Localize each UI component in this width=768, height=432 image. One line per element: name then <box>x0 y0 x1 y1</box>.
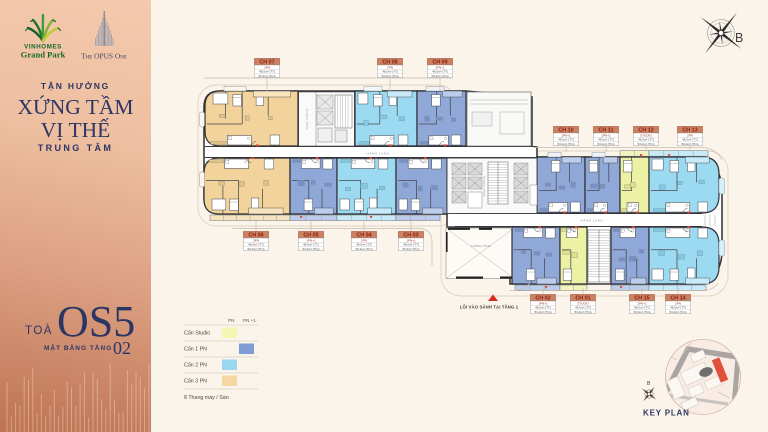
svg-text:HÀNH LANG: HÀNH LANG <box>581 219 604 223</box>
svg-text:53.2m² (Tim): 53.2m² (Tim) <box>633 310 650 314</box>
svg-text:53.2m² (Tim): 53.2m² (Tim) <box>637 142 654 146</box>
svg-text:53.2m² (Tim): 53.2m² (Tim) <box>402 247 419 251</box>
svg-text:HÀNH LANG: HÀNH LANG <box>367 152 390 156</box>
svg-text:53.2m² (Tim): 53.2m² (Tim) <box>557 142 574 146</box>
svg-text:53.2m² (Tim): 53.2m² (Tim) <box>431 74 448 78</box>
svg-text:LỐI VÀO SẢNH TẠI TẦNG 1: LỐI VÀO SẢNH TẠI TẦNG 1 <box>460 305 519 310</box>
svg-text:53.2m² (Tim): 53.2m² (Tim) <box>681 142 698 146</box>
svg-text:53.2m² (Tim): 53.2m² (Tim) <box>534 310 551 314</box>
svg-text:53.2m² (Tim): 53.2m² (Tim) <box>597 142 614 146</box>
svg-text:B: B <box>647 381 651 387</box>
svg-text:53.2m² (Tim): 53.2m² (Tim) <box>381 74 398 78</box>
svg-text:53.2m² (Tim): 53.2m² (Tim) <box>302 247 319 251</box>
svg-text:KEY PLAN: KEY PLAN <box>643 409 690 418</box>
svg-text:THÔNG TẦNG: THÔNG TẦNG <box>471 243 492 248</box>
svg-text:53.2m² (Tim): 53.2m² (Tim) <box>258 74 275 78</box>
svg-text:53.2m² (Tim): 53.2m² (Tim) <box>355 247 372 251</box>
svg-text:53.2m² (Tim): 53.2m² (Tim) <box>247 247 264 251</box>
svg-text:53.2m² (Tim): 53.2m² (Tim) <box>574 310 591 314</box>
svg-text:53.2m² (Tim): 53.2m² (Tim) <box>669 310 686 314</box>
svg-text:B: B <box>735 31 743 45</box>
